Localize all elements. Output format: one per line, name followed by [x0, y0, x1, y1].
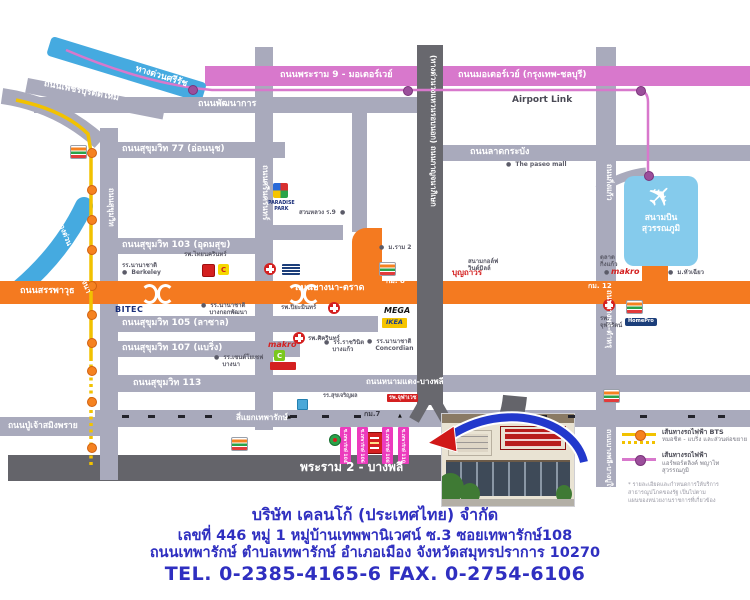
label-sukhumvit-old: ถนนสุขุมวิท	[106, 188, 115, 227]
hospital-cross-icon	[328, 302, 340, 314]
soi-theparak-bar: ซ.เทพารักษ์ 104	[340, 427, 351, 464]
legend-arl-subtitle: แอร์พอร์ตลิงค์ พญาไท สุวรรณภูมิ	[662, 460, 748, 476]
location-photo	[442, 414, 574, 506]
soi-label: ซ.เทพารักษ์ 104	[342, 429, 349, 463]
legend-arl-title: เส้นทางรถไฟฟ้า	[662, 451, 748, 459]
label-pattanakarn: ถนนพัฒนาการ	[198, 99, 256, 110]
suvarnabhumi-airport-box: ✈ สนามบิน สุวรรณภูมิ	[624, 176, 698, 266]
hospital-cross-icon	[264, 263, 276, 275]
road-suanluang-connector	[352, 112, 367, 232]
label-sukhumvit-103: ถนนสุขุมวิท 103 (อุดมสุข)	[122, 240, 230, 251]
company-info: บริษัท เคลนโก้ (ประเทศไทย) จำกัด เลขที่ …	[30, 503, 720, 585]
soi-theparak-bar: ซ.เทพารักษ์ 106	[357, 427, 368, 464]
label-bangkok-patana-school: ● รร.นานาชาติ บางกอกพัฒนา	[201, 302, 247, 316]
airport-link-station-dot	[403, 86, 413, 96]
bts-station-dot	[87, 185, 97, 195]
legend-arl-row: เส้นทางรถไฟฟ้า แอร์พอร์ตลิงค์ พญาไท สุวร…	[620, 451, 748, 475]
label-ladkrabang: ถนนลาดกระบัง	[470, 147, 529, 158]
bts-station-dot	[87, 366, 97, 376]
arl-station-dot	[635, 455, 646, 466]
label-ikea: IKEA	[382, 318, 407, 328]
bus-stop-dash	[688, 415, 695, 418]
legend-arl-text: เส้นทางรถไฟฟ้า แอร์พอร์ตลิงค์ พญาไท สุวร…	[662, 451, 748, 475]
label-airport-link: Airport Link	[512, 95, 572, 106]
seven-eleven-icon	[231, 437, 248, 451]
label-namdaeng-bangphli: ถนนหนามแดง-บางพลี	[366, 377, 444, 386]
bus-stop-dash	[512, 415, 519, 418]
seven-eleven-icon	[70, 145, 87, 159]
legend-bts-row: เส้นทางรถไฟฟ้า BTS หมอชิต - แบริ่ง และส่…	[620, 428, 748, 444]
bus-stop-dash	[540, 415, 547, 418]
logo-green-circle-icon	[329, 434, 341, 446]
bus-stop-dash	[568, 415, 575, 418]
bus-stop-dash	[290, 415, 297, 418]
bus-stop-dash	[354, 415, 361, 418]
label-sukjaroen-school: รร.สุขเจริญผล	[323, 393, 357, 399]
bts-station-dot	[87, 215, 97, 225]
label-berkeley-school: รร.นานาชาติ ● Berkeley	[122, 262, 161, 276]
label-bangna-trad: ถนนบางนา-ตราด	[295, 283, 364, 294]
soi-theparak-bar: ซ.เทพารักษ์ 108	[382, 427, 393, 464]
central-city-logo-icon	[282, 264, 300, 275]
company-phone: TEL. 0-2385-4165-6 FAX. 0-2754-6106	[30, 563, 720, 585]
bts-station-dot	[87, 245, 97, 255]
bts-line-swatch	[620, 428, 662, 444]
photo-red-sign	[500, 426, 566, 450]
label-thainakarin-hospital: รพ.ไทยนครินทร์	[184, 251, 227, 258]
road-suanluang	[255, 225, 343, 240]
bus-stop-dash	[322, 415, 329, 418]
map-canvas: ✈ สนามบิน สุวรรณภูมิ เส้นทางรถไฟฟ้า BTS …	[0, 0, 750, 600]
bts-station-dot	[87, 443, 97, 453]
label-concordian-school: ● รร.นานาชาติ Concordian	[367, 338, 413, 352]
label-chulavej-hospital: รพ.จุฬาเวช	[387, 394, 418, 402]
label-ram2-university: ● ม.ราม 2	[379, 244, 411, 251]
label-makro-srinakarin: makro	[268, 340, 297, 349]
bus-stop-dash	[178, 415, 185, 418]
bank-logo-blue-icon	[297, 399, 308, 410]
label-windmill: สนามกอล์ฟ วินด์มิลล์	[468, 258, 498, 272]
company-location-marker	[366, 432, 383, 454]
label-sukhumvit-113: ถนนสุขุมวิท 113	[133, 378, 201, 389]
label-piyamin-hospital: รพ.ปิยะมินทร์	[281, 304, 316, 311]
label-paseo-mall: ● The paseo mall	[506, 161, 567, 168]
label-suanluang-r9: สวนหลวง ร.9 ●	[299, 209, 345, 216]
label-central-c: C	[221, 266, 226, 274]
label-entrance-mark-1: ▲	[287, 415, 291, 421]
label-stjoseph-bangna: ● รร.เซนต์โยเซฟ บางนา	[214, 354, 263, 368]
label-rama2-bangphli: พระราม 2 - บางพลี	[300, 460, 403, 474]
label-paradise-park: PARADISE PARK	[268, 201, 295, 212]
store-logo-red-icon	[202, 264, 215, 277]
legend-bts-text: เส้นทางรถไฟฟ้า BTS หมอชิต - แบริ่ง และส่…	[662, 428, 747, 444]
photo-roofline	[442, 414, 574, 423]
airport-link-station-dot	[188, 85, 198, 95]
soi-label: ซ.เทพารักษ์ 106	[359, 429, 366, 463]
label-yaek-theparak: สี่แยกเทพารักษ์	[236, 413, 288, 422]
bts-station-dot	[87, 397, 97, 407]
seven-eleven-icon	[626, 300, 643, 314]
label-poochao-samingprai: ถนนปู่เจ้าสมิงพราย	[8, 421, 78, 431]
label-makro-kingkaeo-bullet: ●	[604, 269, 609, 276]
seven-eleven-icon	[379, 262, 396, 276]
bus-stop-dash	[148, 415, 155, 418]
label-homepro: HomePro	[625, 318, 657, 326]
label-kingkaeo: ถนนกิ่งแก้ว	[604, 164, 613, 201]
label-sukhumvit-77: ถนนสุขุมวิท 77 (อ่อนนุช)	[122, 144, 225, 155]
photo-side-sign	[448, 430, 492, 456]
company-address-line2: ถนนเทพารักษ์ ตำบลเทพารักษ์ อำเภอเมือง จั…	[30, 545, 720, 562]
label-makro-kingkaeo: makro	[611, 267, 640, 276]
label-chularat-hospital: รพ. จุฬารัตน์	[600, 315, 622, 329]
bts-station-dot	[635, 430, 646, 441]
store-logo-redwide-icon	[270, 362, 296, 370]
road-theparak	[95, 410, 750, 427]
soi-theparak-bar: ซ.เทพารักษ์ 110	[398, 427, 409, 464]
bts-station-dot	[87, 338, 97, 348]
paradise-park-logo-icon	[273, 183, 288, 198]
bts-dashed-swatch	[622, 441, 656, 444]
road-sukhumvit-old	[100, 128, 118, 480]
label-rajavinit-bangkaeo: ● รร.ราชวินิต บางแก้ว	[324, 339, 364, 353]
soi-label: ซ.เทพารักษ์ 108	[384, 429, 391, 463]
bus-stop-dash	[122, 415, 129, 418]
label-sukhumvit-105: ถนนสุขุมวิท 105 (ลาซาล)	[122, 318, 229, 329]
label-kanchanaphisek: (ทางด่วนวงแหวนรอบนอก) ถนนกาญจนาภิเษก	[428, 55, 437, 207]
label-motorway-bangkok-chonburi: ถนนมอเตอร์เวย์ (กรุงเทพ-ชลบุรี)	[458, 70, 587, 81]
label-km7: กม.7	[364, 410, 380, 418]
label-km8: กม. 8	[386, 277, 405, 285]
seven-eleven-icon	[603, 389, 620, 403]
bus-stop-dash	[640, 415, 647, 418]
legend-bts-subtitle: หมอชิต - แบริ่ง และส่วนต่อขยาย	[662, 436, 747, 444]
company-name: บริษัท เคลนโก้ (ประเทศไทย) จำกัด	[30, 503, 720, 528]
bus-stop-dash	[205, 415, 212, 418]
arl-line-swatch	[620, 451, 662, 475]
interchange-arc-icon	[141, 284, 158, 304]
label-entrance-mark-2: ▲	[398, 414, 402, 420]
label-rama9-motorway: ถนนพระราม 9 - มอเตอร์เวย์	[280, 70, 392, 81]
bts-station-dot	[87, 148, 97, 158]
soi-label: ซ.เทพารักษ์ 110	[400, 429, 407, 463]
label-sukhumvit-107: ถนนสุขุมวิท 107 (แบริ่ง)	[122, 343, 222, 354]
airport-link-station-dot	[644, 171, 654, 181]
interchange-arc-icon	[157, 284, 174, 304]
label-sanphawut: ถนนสรรพาวุธ	[20, 286, 74, 297]
label-bangphli-bangpoo: ถนนบางพลี-บางปูใหม่	[605, 429, 613, 495]
company-address-line1: เลขที่ 446 หมู่ 1 หมู่บ้านเทพพานิเวศน์ ซ…	[30, 528, 720, 545]
map-legend: เส้นทางรถไฟฟ้า BTS หมอชิต - แบริ่ง และส่…	[620, 428, 748, 505]
legend-note: * รายละเอียดและกำหนดการให้บริการ สาธารณู…	[620, 482, 748, 505]
bts-line-solid	[16, 100, 91, 358]
label-mega: MEGA	[384, 306, 410, 315]
bts-station-dot	[87, 310, 97, 320]
label-huachiew: ● ม.หัวเฉียว	[668, 269, 704, 276]
label-green-c: C	[277, 352, 282, 360]
label-bitec: BITEC	[115, 305, 143, 314]
road-chalermprakiat	[352, 228, 382, 286]
airport-link-station-dot	[636, 86, 646, 96]
label-km12: กม. 12	[588, 282, 612, 290]
bus-stop-dash	[718, 415, 725, 418]
